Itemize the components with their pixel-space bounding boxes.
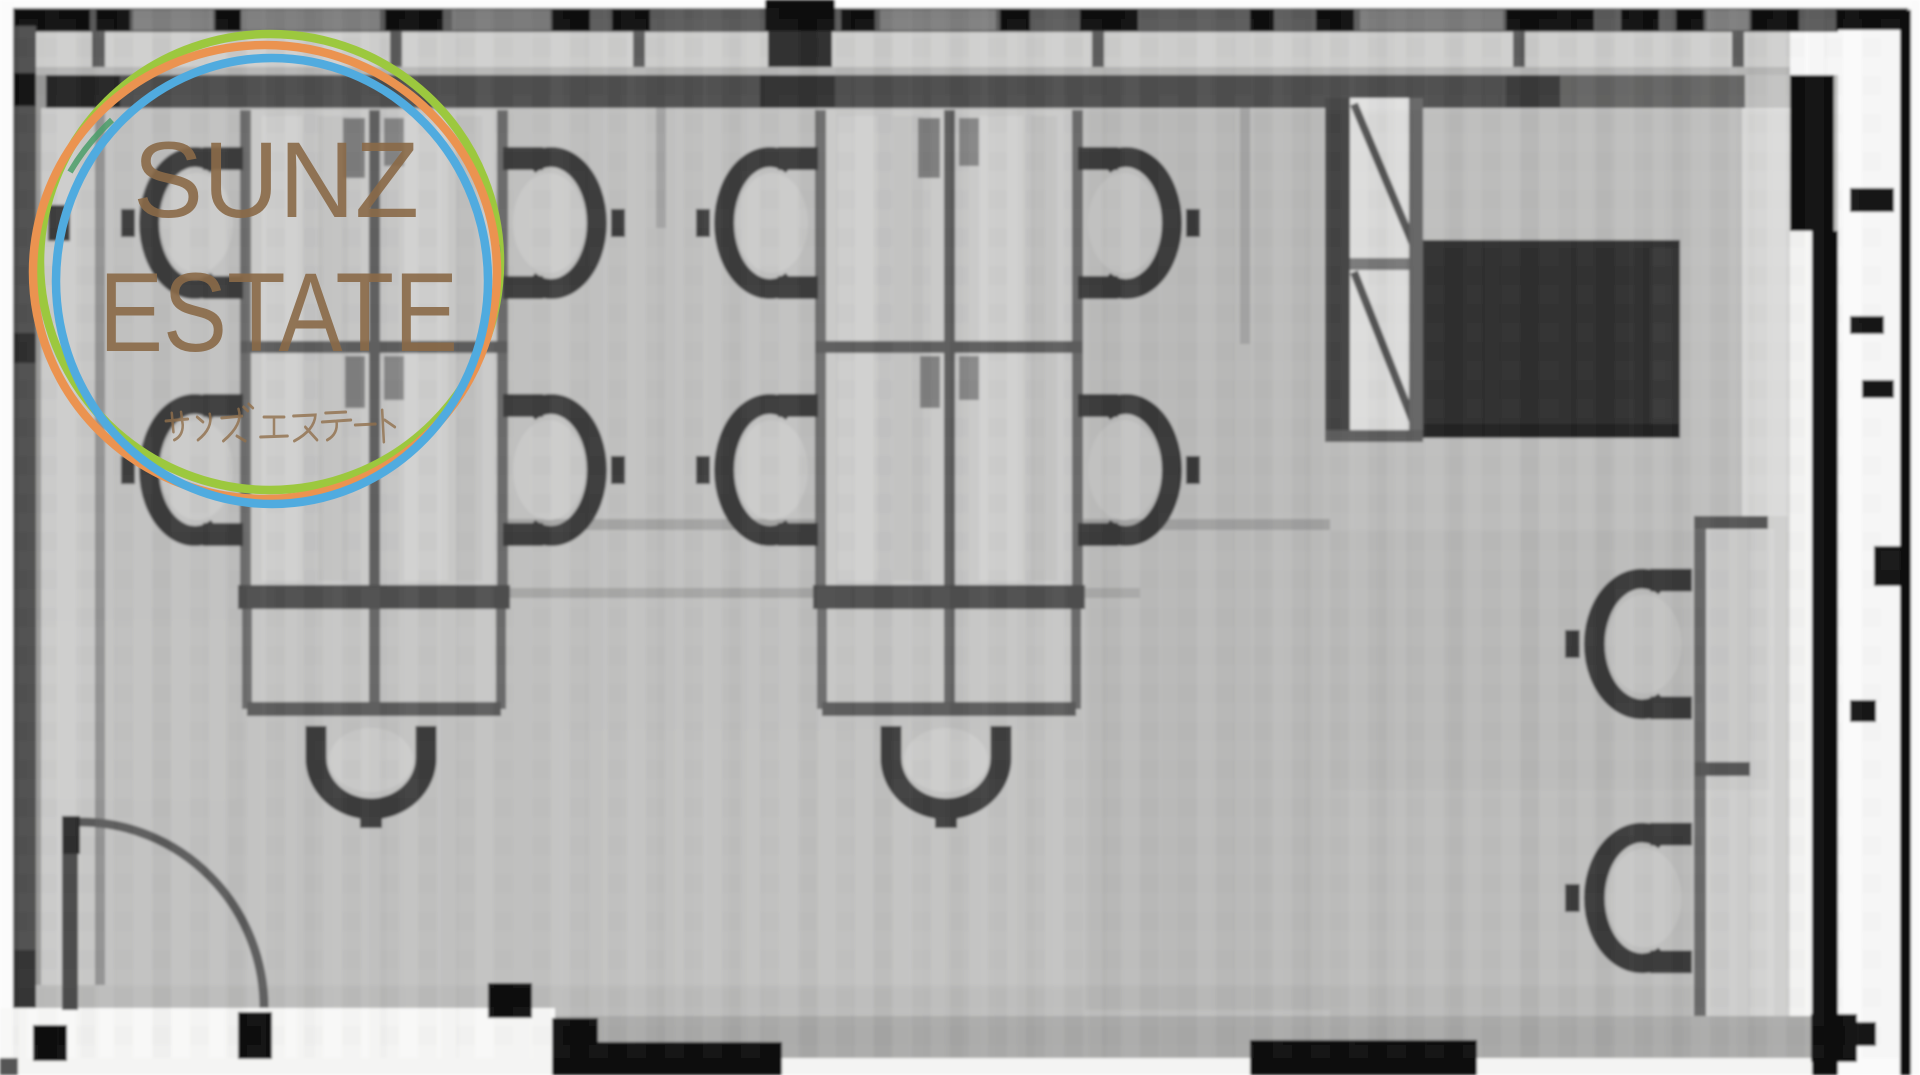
svg-text:SUNZ: SUNZ	[133, 119, 419, 240]
svg-text:ESTATE: ESTATE	[99, 250, 458, 375]
